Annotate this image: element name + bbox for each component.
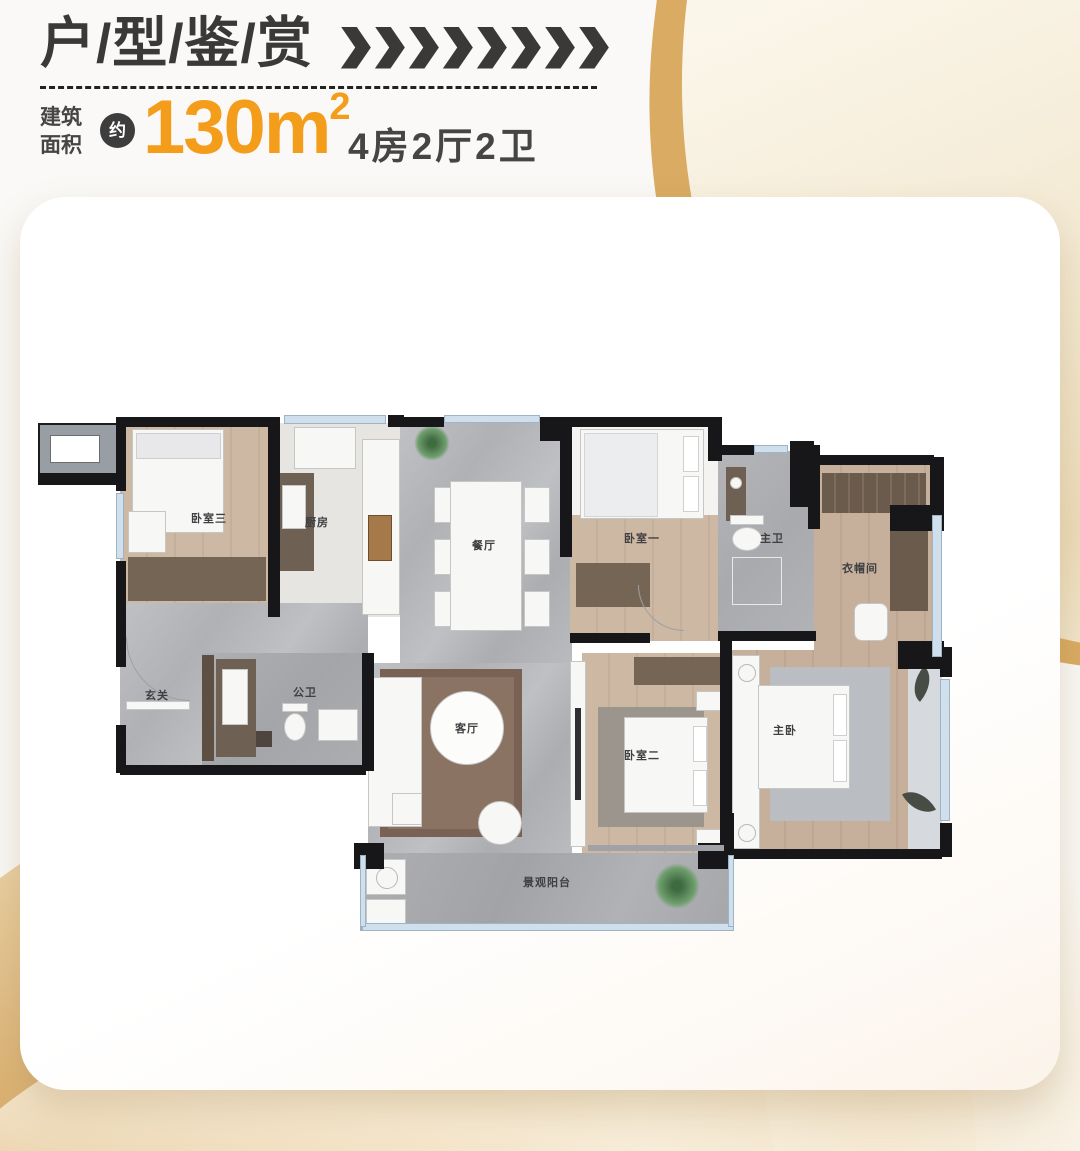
ottoman	[392, 793, 422, 825]
chevron-right-icon	[443, 27, 473, 69]
approx-badge: 约	[100, 113, 135, 148]
wall-segment	[116, 561, 126, 607]
window	[284, 415, 386, 424]
chevron-right-icon	[511, 27, 541, 69]
nightstand	[696, 691, 722, 711]
pillow	[693, 770, 707, 806]
sink-counter	[222, 669, 248, 725]
ornament	[738, 824, 756, 842]
wall-segment	[940, 823, 952, 857]
poster: 户/型/鉴/赏 建筑 面积 约 130m2 4房2厅2卫	[0, 0, 1080, 1151]
window	[940, 679, 950, 821]
pillow	[833, 740, 847, 782]
tv	[575, 708, 581, 800]
chevron-row	[341, 19, 609, 69]
wall-segment	[570, 633, 650, 643]
room-label-kitchen: 厨房	[305, 514, 329, 530]
area-label-line1: 建筑	[40, 104, 82, 132]
bath-vanity	[726, 467, 746, 521]
wall-segment	[120, 765, 366, 775]
toilet	[284, 713, 306, 741]
plant-icon	[654, 863, 700, 909]
wall-segment	[202, 655, 214, 761]
kitchen-sink	[294, 427, 356, 469]
closet-wardrobe-side	[890, 531, 928, 611]
dining-chair	[524, 591, 550, 627]
wardrobe	[634, 657, 724, 685]
ac-unit-panel	[50, 435, 100, 463]
wall-segment	[560, 417, 572, 557]
area-value: 130m2	[143, 88, 351, 166]
room-label-closet: 衣帽间	[842, 560, 878, 576]
side-table	[478, 801, 522, 845]
wall-segment	[728, 849, 942, 859]
chevron-right-icon	[579, 27, 609, 69]
room-label-living: 客厅	[455, 720, 479, 736]
room-label-master-bedroom: 主卧	[773, 722, 797, 738]
sliding-door	[588, 845, 724, 851]
ac-outdoor-unit	[38, 423, 118, 475]
header: 户/型/鉴/赏	[40, 16, 609, 71]
wall-segment	[120, 417, 270, 427]
dresser-column	[732, 655, 760, 849]
wall-segment	[116, 417, 126, 491]
desk	[128, 511, 166, 553]
room-label-public-bath: 公卫	[293, 684, 317, 700]
wall-segment	[38, 473, 120, 485]
room-label-bedroom2: 卧室二	[624, 747, 660, 763]
wall-segment	[400, 417, 444, 427]
sink	[730, 477, 742, 489]
room-label-bedroom3: 卧室三	[191, 510, 227, 526]
layout-summary: 4房2厅2卫	[348, 116, 539, 170]
blanket	[584, 433, 658, 517]
wash-basin	[318, 709, 358, 741]
pillow	[683, 476, 699, 512]
wall-segment	[362, 653, 374, 771]
chevron-right-icon	[375, 27, 405, 69]
window	[728, 855, 734, 927]
pillow	[683, 436, 699, 472]
chevron-right-icon	[477, 27, 507, 69]
chevron-right-icon	[545, 27, 575, 69]
window	[116, 493, 124, 559]
toilet	[732, 527, 762, 551]
stool	[854, 603, 888, 641]
dining-chair	[524, 539, 550, 575]
chevron-right-icon	[409, 27, 439, 69]
pillow	[136, 433, 221, 459]
window	[362, 923, 734, 931]
pillow	[693, 726, 707, 762]
bed	[624, 717, 708, 813]
ornament	[738, 664, 756, 682]
window	[360, 855, 366, 927]
bed	[580, 429, 704, 519]
shower	[732, 557, 782, 605]
wall-segment	[718, 445, 754, 455]
cooktop	[282, 485, 306, 529]
chevron-right-icon	[341, 27, 371, 69]
area-label-line2: 面积	[40, 132, 82, 160]
tv-console	[570, 661, 586, 847]
wall-segment	[570, 417, 720, 427]
dining-chair	[524, 487, 550, 523]
floor-plan-card: 卧室三 厨房 餐厅 卧室一 主卫 衣帽间 玄关 公卫 客厅 卧室二 主卧 景观阳…	[20, 197, 1060, 1090]
room-label-hall: 玄关	[145, 687, 169, 703]
wardrobe	[128, 557, 266, 601]
toilet-tank	[282, 703, 308, 712]
room-label-dining: 餐厅	[472, 537, 496, 553]
bed	[758, 685, 850, 789]
room-label-master-bath: 主卫	[760, 530, 784, 546]
window	[444, 415, 540, 423]
toilet-tank	[730, 515, 764, 525]
wall-segment	[268, 417, 280, 617]
dining-table	[450, 481, 522, 631]
wall-segment	[116, 603, 126, 667]
window	[754, 445, 788, 453]
window	[932, 515, 942, 657]
room-label-balcony: 景观阳台	[523, 874, 571, 890]
washer-drum	[376, 867, 398, 889]
plant-icon	[414, 425, 450, 461]
wall-segment	[816, 455, 934, 465]
room-label-bedroom1: 卧室一	[624, 530, 660, 546]
pillow	[833, 694, 847, 736]
wall-segment	[718, 631, 816, 641]
page-title: 户/型/鉴/赏	[40, 16, 313, 71]
area-label: 建筑 面积	[40, 104, 82, 160]
wall-segment	[354, 843, 384, 869]
food-tray	[368, 515, 392, 561]
floor-plan: 卧室三 厨房 餐厅 卧室一 主卫 衣帽间 玄关 公卫 客厅 卧室二 主卧 景观阳…	[32, 415, 944, 937]
